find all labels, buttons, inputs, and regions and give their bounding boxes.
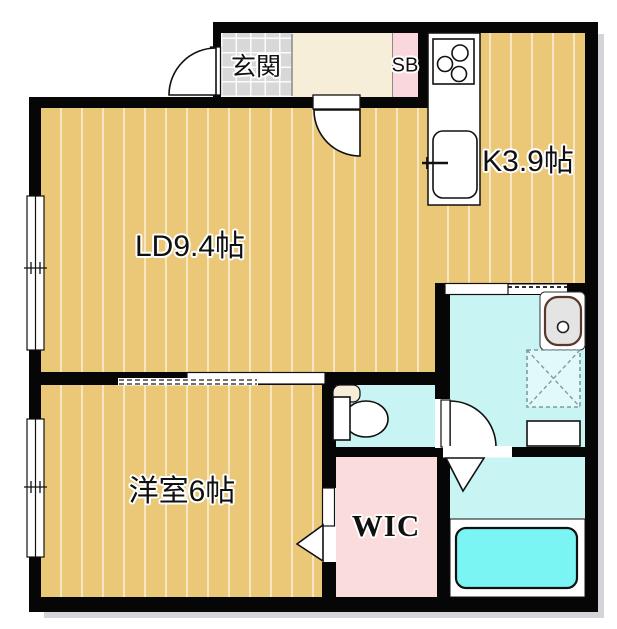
room-label-shoe-box: SB: [392, 55, 419, 78]
washbasin-icon: [540, 292, 585, 350]
room-label-kitchen: K3.9帖: [482, 136, 574, 180]
room-label-living-dining: LD9.4帖: [135, 221, 245, 265]
toilet-door: [435, 399, 496, 448]
bathtub-icon: [450, 519, 585, 597]
bath-folding-door: [443, 446, 512, 491]
room-label-wic: WIC: [352, 508, 420, 544]
window: [24, 196, 47, 350]
window: [24, 419, 47, 557]
floorplan: LD9.4帖 K3.9帖 洋室6帖 玄関 SB WIC: [0, 0, 617, 629]
room-label-western-room: 洋室6帖: [129, 466, 236, 510]
fixtures-layer: [0, 0, 617, 629]
toilet-icon: [333, 385, 388, 440]
hall-ld-door: [313, 95, 360, 156]
room-label-genkan: 玄関: [231, 47, 281, 83]
closet-folding-door: [297, 488, 336, 562]
entrance-door: [169, 47, 221, 95]
gas-stove-icon: [433, 39, 474, 84]
washroom-counter: [527, 421, 580, 446]
sliding-door-ld-western: [118, 373, 325, 386]
washing-machine-pan-icon: [527, 350, 580, 407]
